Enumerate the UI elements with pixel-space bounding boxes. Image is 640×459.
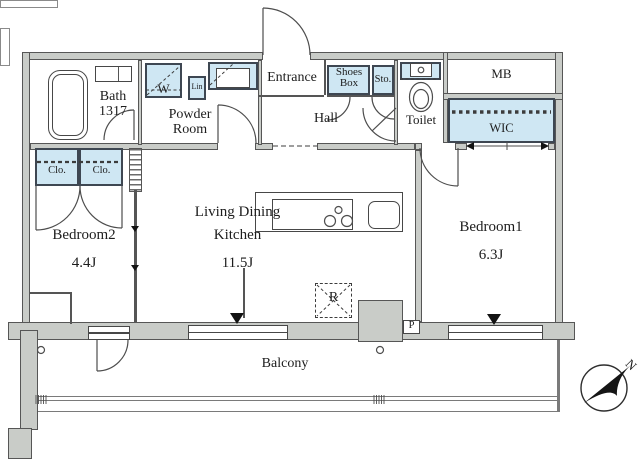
closet-right-label: Clo. <box>80 165 123 176</box>
toilet-bowl-inner <box>414 90 429 109</box>
bath-counter <box>95 66 132 82</box>
bedroom2-step-v <box>70 292 72 324</box>
wall-b1-top-left <box>415 143 422 150</box>
room-label-powder-2: Room <box>148 123 232 138</box>
bedroom2-step-h <box>30 292 72 294</box>
refrigerator-label: R <box>315 291 352 306</box>
balcony-railing-line1 <box>38 396 558 397</box>
shoesbox-bottom-line <box>327 95 394 97</box>
kitchen-stub-wall <box>243 268 245 318</box>
wall-left <box>22 52 30 330</box>
storage-label: Sto. <box>371 74 395 85</box>
bath-counter-divider <box>118 67 119 81</box>
bathtub-inner <box>52 74 84 136</box>
room-label-ldk-2: Kitchen <box>175 228 300 244</box>
wic-opening-line <box>467 142 548 150</box>
wall-under-hall <box>317 143 415 150</box>
wic-arrow-left <box>466 142 474 150</box>
balcony-drain-right <box>377 347 384 354</box>
wall-top-left <box>22 52 263 60</box>
vanity-sink <box>216 68 250 88</box>
room-label-entrance: Entrance <box>254 71 330 86</box>
room-label-bedroom2: Bedroom2 <box>38 228 130 244</box>
wall-bedroom2-ldk <box>134 190 137 322</box>
wall-hall-toilet <box>394 60 398 145</box>
balcony-railing-line2 <box>38 400 558 401</box>
bedroom2-balcony-door-arc <box>97 340 128 371</box>
wall-ldk-bedroom1 <box>415 150 422 322</box>
floor-plan: Bath 1317 Powder Room W Lin Entrance Sho… <box>0 0 640 459</box>
adjacent-wall-fragment-top <box>0 0 58 8</box>
toilet-door-leaf <box>372 108 396 131</box>
window-bedroom1 <box>448 325 543 340</box>
room-label-balcony: Balcony <box>235 357 335 372</box>
room-area-bedroom2: 4.4J <box>38 256 130 272</box>
balcony-railing-line3 <box>38 411 558 412</box>
compass-needle <box>584 365 631 403</box>
entrance-step-line <box>258 95 324 97</box>
linen-label: Lin <box>188 83 206 91</box>
window-ldk <box>188 325 288 340</box>
toilet-door-arc <box>363 108 396 141</box>
room-label-hall: Hall <box>304 112 348 127</box>
kitchen-sink <box>368 201 400 229</box>
balcony-right-wall <box>557 340 560 412</box>
room-area-ldk: 11.5J <box>175 256 300 272</box>
closet-door-right-arc <box>80 186 122 228</box>
toilet-bowl <box>410 83 433 112</box>
north-label: N <box>620 354 640 376</box>
wall-bedroom2-ldk-hatch <box>129 148 142 192</box>
meter-box-label: MB <box>448 67 555 81</box>
shoesbox-door-right-arc <box>372 97 394 119</box>
room-label-bath: Bath <box>84 90 142 105</box>
room-label-bedroom1: Bedroom1 <box>445 220 537 236</box>
room-label-powder-1: Powder <box>148 108 232 123</box>
wall-b1-top-right <box>455 143 467 150</box>
entrance-door-arc <box>263 8 310 55</box>
wall-top-right <box>310 52 563 60</box>
room-label-ldk-1: Living Dining <box>175 205 300 221</box>
washer-label: W <box>145 82 182 96</box>
pipe-duct-block <box>358 300 403 342</box>
bedroom1-door-arc <box>420 148 458 186</box>
compass-icon <box>581 365 631 411</box>
pipe-space-label: P <box>403 320 420 331</box>
room-label-toilet: Toilet <box>397 113 445 127</box>
compass-circle <box>581 365 627 411</box>
closet-left-label: Clo. <box>36 165 78 176</box>
adjacent-wall-fragment-left <box>0 28 10 66</box>
room-size-bath: 1317 <box>84 105 142 120</box>
wall-wic-corner <box>548 143 555 150</box>
balcony-door-bedroom2 <box>88 326 130 340</box>
balcony-drain-left <box>38 347 45 354</box>
toilet-tank <box>410 63 432 77</box>
shoes-box-label-2: Box <box>328 78 370 90</box>
room-area-bedroom1: 6.3J <box>445 248 537 264</box>
wic-label: WIC <box>448 122 555 135</box>
closet-door-left-arc <box>36 186 80 230</box>
wall-balcony-corner <box>8 428 32 459</box>
wall-balcony-left <box>20 330 38 430</box>
